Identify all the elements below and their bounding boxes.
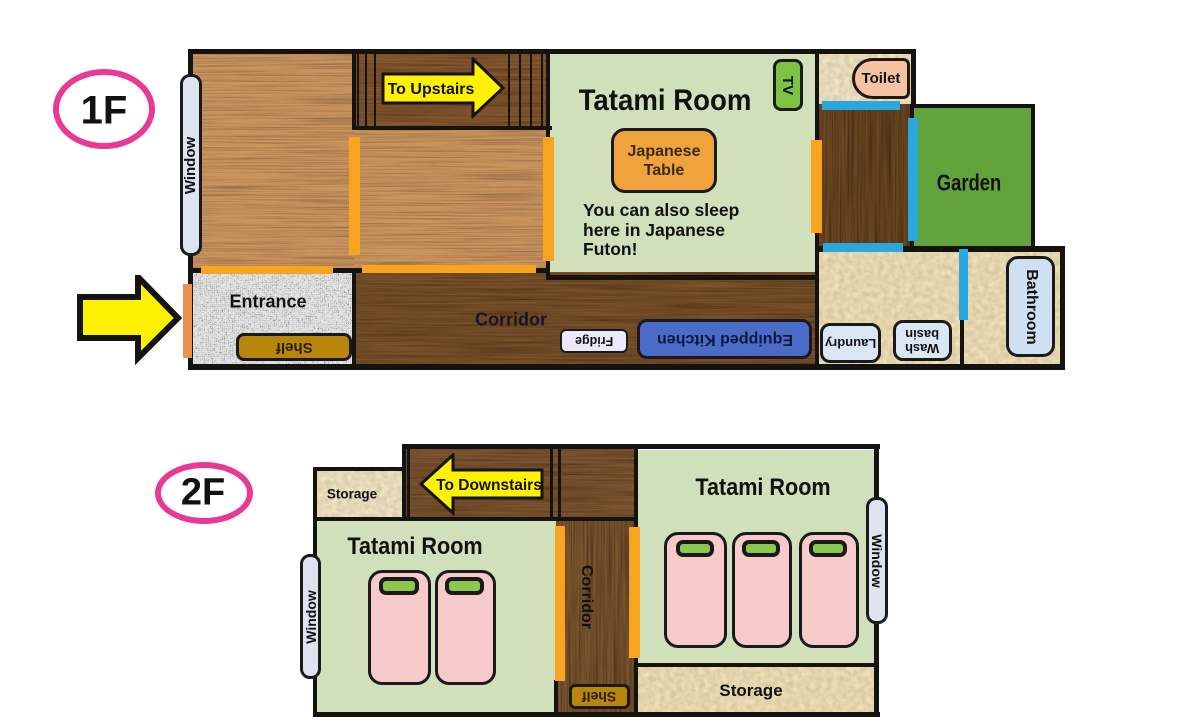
svg-text:To Upstairs: To Upstairs bbox=[388, 81, 475, 98]
svg-text:To Downstairs: To Downstairs bbox=[436, 477, 542, 494]
